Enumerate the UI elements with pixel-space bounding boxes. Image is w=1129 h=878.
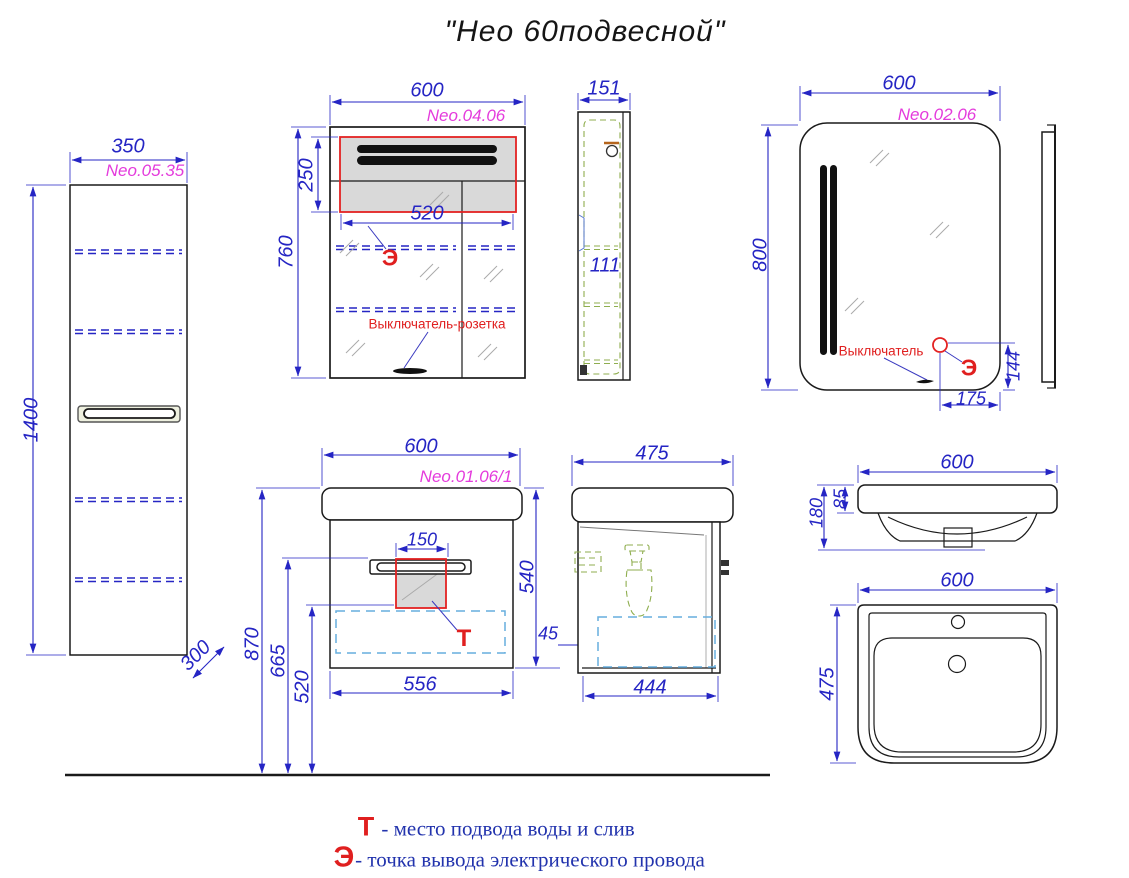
dim-sink-rim: 85 — [831, 489, 852, 509]
label-vanity: Neo.01.06/1 — [420, 467, 513, 487]
dim-mirror-cabinet-height: 760 — [276, 235, 299, 268]
sink-front-view — [817, 465, 1057, 550]
legend-t-marker: Т — [358, 812, 375, 843]
dim-switch-y: 144 — [1004, 351, 1025, 381]
dim-sink-top-depth: 475 — [817, 667, 840, 700]
vanity-view — [256, 448, 588, 773]
dim-tall-height: 1400 — [21, 398, 44, 443]
label-tall-cabinet: Neo.05.35 — [106, 161, 184, 181]
dim-side-inner: 111 — [590, 255, 620, 278]
label-mirror-cabinet: Neo.04.06 — [427, 106, 505, 126]
dim-floor-handle: 665 — [268, 644, 291, 677]
tall-cabinet-view — [26, 152, 224, 678]
dim-sink-height: 180 — [807, 498, 828, 528]
washbasin-side — [572, 488, 733, 522]
dim-vanity-height: 540 — [517, 560, 540, 593]
switch-socket-note: Выключатель-розетка — [368, 317, 505, 332]
dim-vanity-bottom-width: 556 — [403, 674, 436, 697]
dim-sink-width: 600 — [940, 452, 973, 475]
wall-bracket — [721, 560, 729, 566]
vanity-side-view — [572, 455, 733, 702]
dim-tall-width: 350 — [111, 136, 144, 159]
bottom-fitting — [580, 365, 587, 375]
drawing-layer — [0, 0, 1129, 878]
switch-note: Выключатель — [839, 344, 924, 359]
legend-e-marker: Э — [334, 842, 355, 875]
washbasin-front — [322, 488, 522, 520]
led-strip — [830, 165, 837, 355]
mirror-cabinet-side-view — [578, 93, 630, 380]
dim-handle-zone: 150 — [407, 530, 437, 551]
legend-t-text: - место подвода воды и слив — [381, 817, 634, 842]
dim-vanity-side-width: 475 — [635, 443, 668, 466]
dim-gap: 45 — [538, 624, 558, 645]
sink-top-view — [830, 583, 1057, 763]
dim-mirror-width: 600 — [882, 73, 915, 96]
dim-switch-x: 175 — [956, 389, 986, 410]
switch-socket — [393, 368, 427, 374]
dim-zone-height: 250 — [296, 158, 319, 191]
led-strip — [820, 165, 827, 355]
label-mirror: Neo.02.06 — [898, 105, 976, 125]
dim-mirror-height: 800 — [750, 238, 773, 271]
dim-zone-width: 520 — [410, 203, 443, 226]
legend-e-text: - точка вывода электрического провода — [355, 848, 705, 873]
dim-vanity-width: 600 — [404, 436, 437, 459]
mirror-side-profile — [1042, 132, 1055, 382]
technical-drawing-page: "Нео 60подвесной" 350 Neo.05.35 1400 300… — [0, 0, 1129, 878]
lamp-bar — [357, 145, 497, 153]
dim-side-width: 151 — [587, 78, 620, 101]
mirror-cabinet-view — [291, 95, 525, 378]
dim-vanity-side-bottom: 444 — [633, 677, 666, 700]
dim-sink-top-width: 600 — [940, 570, 973, 593]
electric-point-marker: Э — [382, 245, 398, 272]
dim-floor-top: 870 — [242, 627, 265, 660]
dim-floor-drawer: 520 — [292, 670, 315, 703]
page-title: "Нео 60подвесной" — [444, 15, 725, 49]
lamp-bar — [357, 156, 497, 165]
electric-point-marker-mirror: Э — [961, 355, 977, 382]
dim-mirror-cabinet-width: 600 — [410, 80, 443, 103]
water-point-marker: Т — [457, 625, 472, 653]
